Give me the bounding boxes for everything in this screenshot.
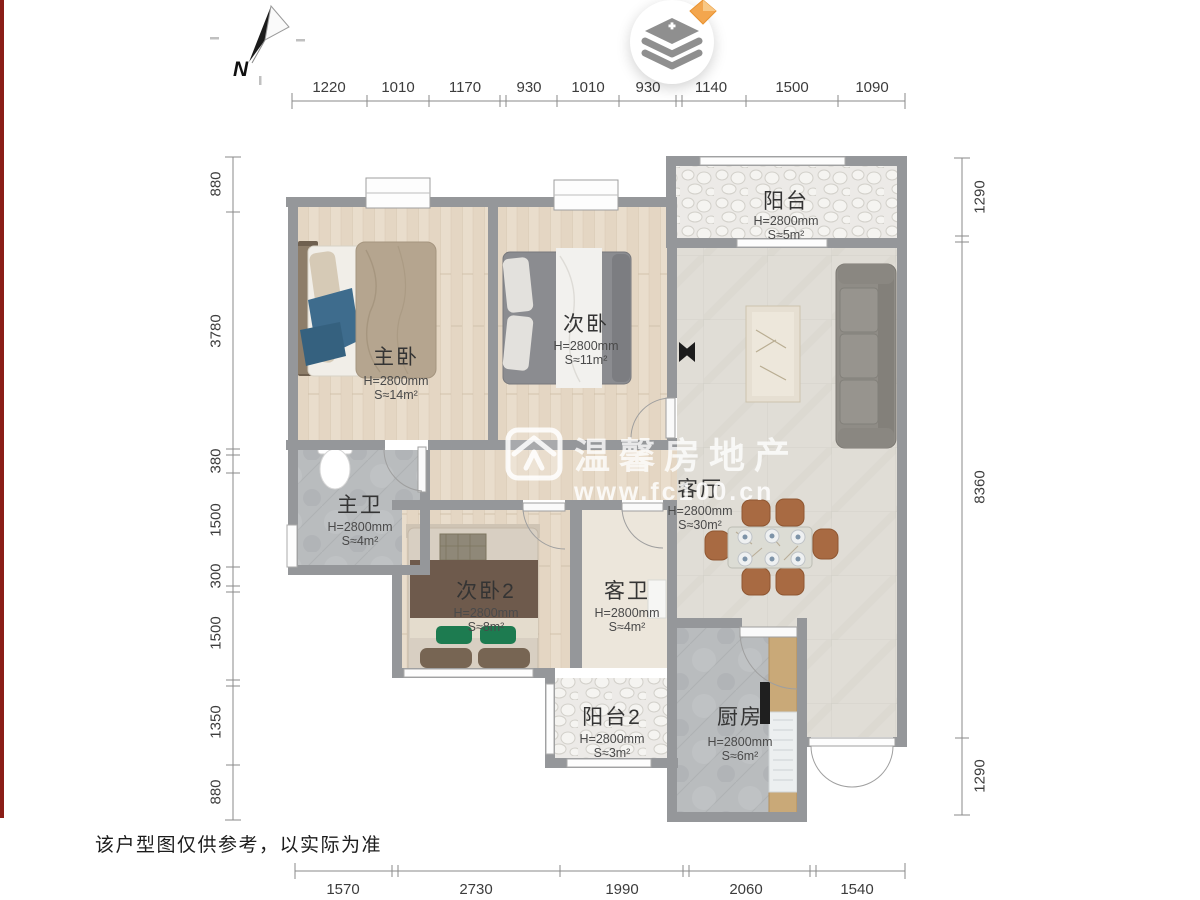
room-height-master-bath: H=2800mm: [328, 520, 393, 534]
room-area-master-bath: S≈4m²: [342, 534, 379, 548]
room-area-kitchen: S≈6m²: [722, 749, 759, 763]
sofa: [836, 264, 896, 448]
dim-bottom-1: 2730: [459, 881, 492, 898]
dim-bottom-4: 1540: [840, 881, 873, 898]
window-master: [366, 178, 430, 208]
dim-right-0: 1290: [972, 180, 989, 213]
compass: N: [210, 6, 305, 85]
dim-top-2: 1170: [449, 79, 481, 96]
door-entry: [809, 738, 895, 787]
dim-right-2: 1290: [972, 759, 989, 792]
room-area-guest-bath: S≈4m²: [609, 620, 646, 634]
room-height-master: H=2800mm: [364, 374, 429, 388]
dim-top-3: 930: [516, 79, 541, 96]
floorplan-svg: 1220 1010 1170 930 1010 930 1140 1500 10…: [0, 0, 1200, 900]
dimension-labels-left: 880 3780 380 1500 300 1500 1350 880: [208, 171, 225, 804]
dim-line-bottom: [295, 863, 905, 879]
compass-n-label: N: [233, 58, 249, 81]
compass-tick-bottom: [259, 76, 262, 85]
dim-left-3: 1500: [208, 503, 225, 536]
dim-line-left: [225, 157, 241, 820]
dim-left-5: 1500: [208, 616, 225, 649]
window-bedroom3: [404, 669, 533, 677]
dim-top-7: 1500: [775, 79, 808, 96]
room-area-bedroom3: S≈8m²: [468, 620, 505, 634]
room-name-bedroom3: 次卧2: [456, 580, 516, 603]
dim-left-1: 3780: [208, 314, 225, 347]
dim-top-1: 1010: [381, 79, 414, 96]
dim-left-4: 300: [208, 563, 225, 588]
room-height-bedroom2: H=2800mm: [554, 339, 619, 353]
dim-right-1: 8360: [972, 470, 989, 503]
dim-left-6: 1350: [208, 705, 225, 738]
left-red-strip: [0, 0, 4, 818]
layers-button[interactable]: [630, 0, 714, 84]
dimension-labels-top: 1220 1010 1170 930 1010 930 1140 1500 10…: [312, 79, 888, 96]
dim-top-4: 1010: [571, 79, 604, 96]
room-name-balcony2: 阳台2: [582, 706, 642, 729]
room-name-master-bath: 主卫: [337, 494, 383, 517]
room-height-balcony: H=2800mm: [754, 214, 819, 228]
room-name-bedroom2: 次卧: [563, 313, 609, 336]
dim-left-2: 380: [208, 448, 225, 473]
room-area-living: S≈30m²: [678, 518, 722, 532]
window-balcony2-bottom: [567, 759, 651, 767]
room-area-balcony: S≈5m²: [768, 228, 805, 242]
room-area-balcony2: S≈3m²: [594, 746, 631, 760]
compass-tick-right: [296, 39, 305, 42]
watermark-text: 温馨房地产: [574, 435, 799, 476]
room-name-balcony: 阳台: [763, 190, 809, 213]
dimension-labels-right: 1290 8360 1290: [972, 180, 989, 792]
floorplan-canvas: 1220 1010 1170 930 1010 930 1140 1500 10…: [0, 0, 1200, 900]
room-name-master: 主卧: [373, 346, 419, 369]
room-height-bedroom3: H=2800mm: [454, 606, 519, 620]
dim-line-right: [954, 158, 970, 815]
room-height-balcony2: H=2800mm: [580, 732, 645, 746]
room-height-living: H=2800mm: [668, 504, 733, 518]
window-balcony-top: [700, 157, 845, 165]
dim-bottom-3: 2060: [729, 881, 762, 898]
dimension-labels-bottom: 1570 2730 1990 2060 1540: [326, 881, 873, 898]
orange-diamond-icon: [688, 0, 718, 26]
dim-top-8: 1090: [855, 79, 888, 96]
window-master-bath: [287, 525, 297, 567]
room-name-guest-bath: 客卫: [604, 580, 650, 603]
window-balcony2-left: [546, 684, 554, 754]
dim-bottom-2: 1990: [605, 881, 638, 898]
room-height-kitchen: H=2800mm: [708, 735, 773, 749]
dim-left-7: 880: [208, 779, 225, 804]
dim-left-0: 880: [208, 171, 225, 196]
room-name-kitchen: 厨房: [717, 706, 763, 729]
compass-tick-left: [210, 37, 219, 40]
room-area-bedroom2: S≈11m²: [565, 353, 608, 367]
disclaimer-text: 该户型图仅供参考，以实际为准: [95, 830, 382, 857]
dim-bottom-0: 1570: [326, 881, 359, 898]
room-area-master: S≈14m²: [374, 388, 418, 402]
dim-top-0: 1220: [312, 79, 345, 96]
compass-needle-light: [265, 6, 289, 40]
watermark-url: www.fc100.cn: [573, 478, 774, 506]
window-bedroom2: [554, 180, 618, 210]
room-height-guest-bath: H=2800mm: [595, 606, 660, 620]
watermark-house-icon: [508, 430, 560, 478]
tv-cabinet: [746, 306, 800, 402]
